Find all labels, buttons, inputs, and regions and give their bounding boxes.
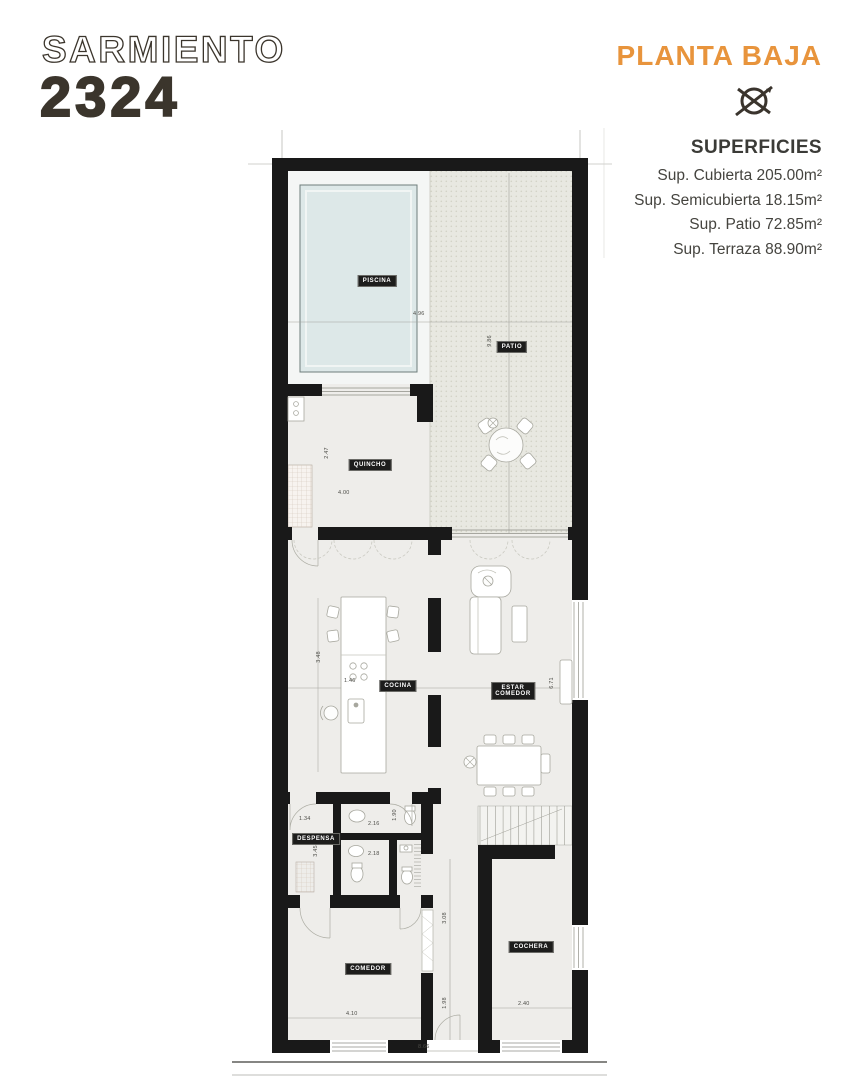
room-label-estar-comedor: ESTAR COMEDOR — [491, 682, 535, 700]
tiled-area — [296, 862, 314, 892]
dim-text: 2.47 — [324, 447, 330, 459]
room-label-quincho: QUINCHO — [349, 459, 392, 471]
dim-text: 1.46 — [344, 678, 356, 684]
dim-text: 4.10 — [346, 1011, 358, 1017]
dim-text: 9.86 — [487, 335, 493, 347]
dim-text: 2.18 — [368, 851, 380, 857]
room-label-despensa: DESPENSA — [292, 833, 340, 845]
dim-text: 4.96 — [413, 311, 425, 317]
sidewalk-lines — [232, 1062, 607, 1075]
dim-text: 6.71 — [549, 677, 555, 689]
room-label-comedor: COMEDOR — [345, 963, 391, 975]
quincho-sink — [288, 397, 304, 421]
room-label-cochera: COCHERA — [509, 941, 554, 953]
estar-line2: COMEDOR — [495, 691, 531, 698]
dim-text: 8.66 — [418, 1044, 430, 1050]
floor-plan-drawing — [0, 0, 848, 1080]
room-label-patio: PATIO — [497, 341, 527, 353]
dim-text: 2.16 — [368, 821, 380, 827]
dim-text: 1.98 — [442, 997, 448, 1009]
floor-plan-page: { "header": { "street_name": "SARMIENTO"… — [0, 0, 848, 1080]
drain-grate — [414, 843, 421, 889]
dim-text: 2.40 — [518, 1001, 530, 1007]
dim-text: 1.34 — [299, 816, 311, 822]
room-label-piscina: PISCINA — [358, 275, 397, 287]
room-label-cocina: COCINA — [379, 680, 416, 692]
dim-text: 4.00 — [338, 490, 350, 496]
dim-text: 1.90 — [392, 809, 398, 821]
dim-text: 3.48 — [316, 651, 322, 663]
dim-text: 3.08 — [442, 912, 448, 924]
closet — [422, 910, 433, 971]
dim-text: 3.45 — [313, 845, 319, 857]
